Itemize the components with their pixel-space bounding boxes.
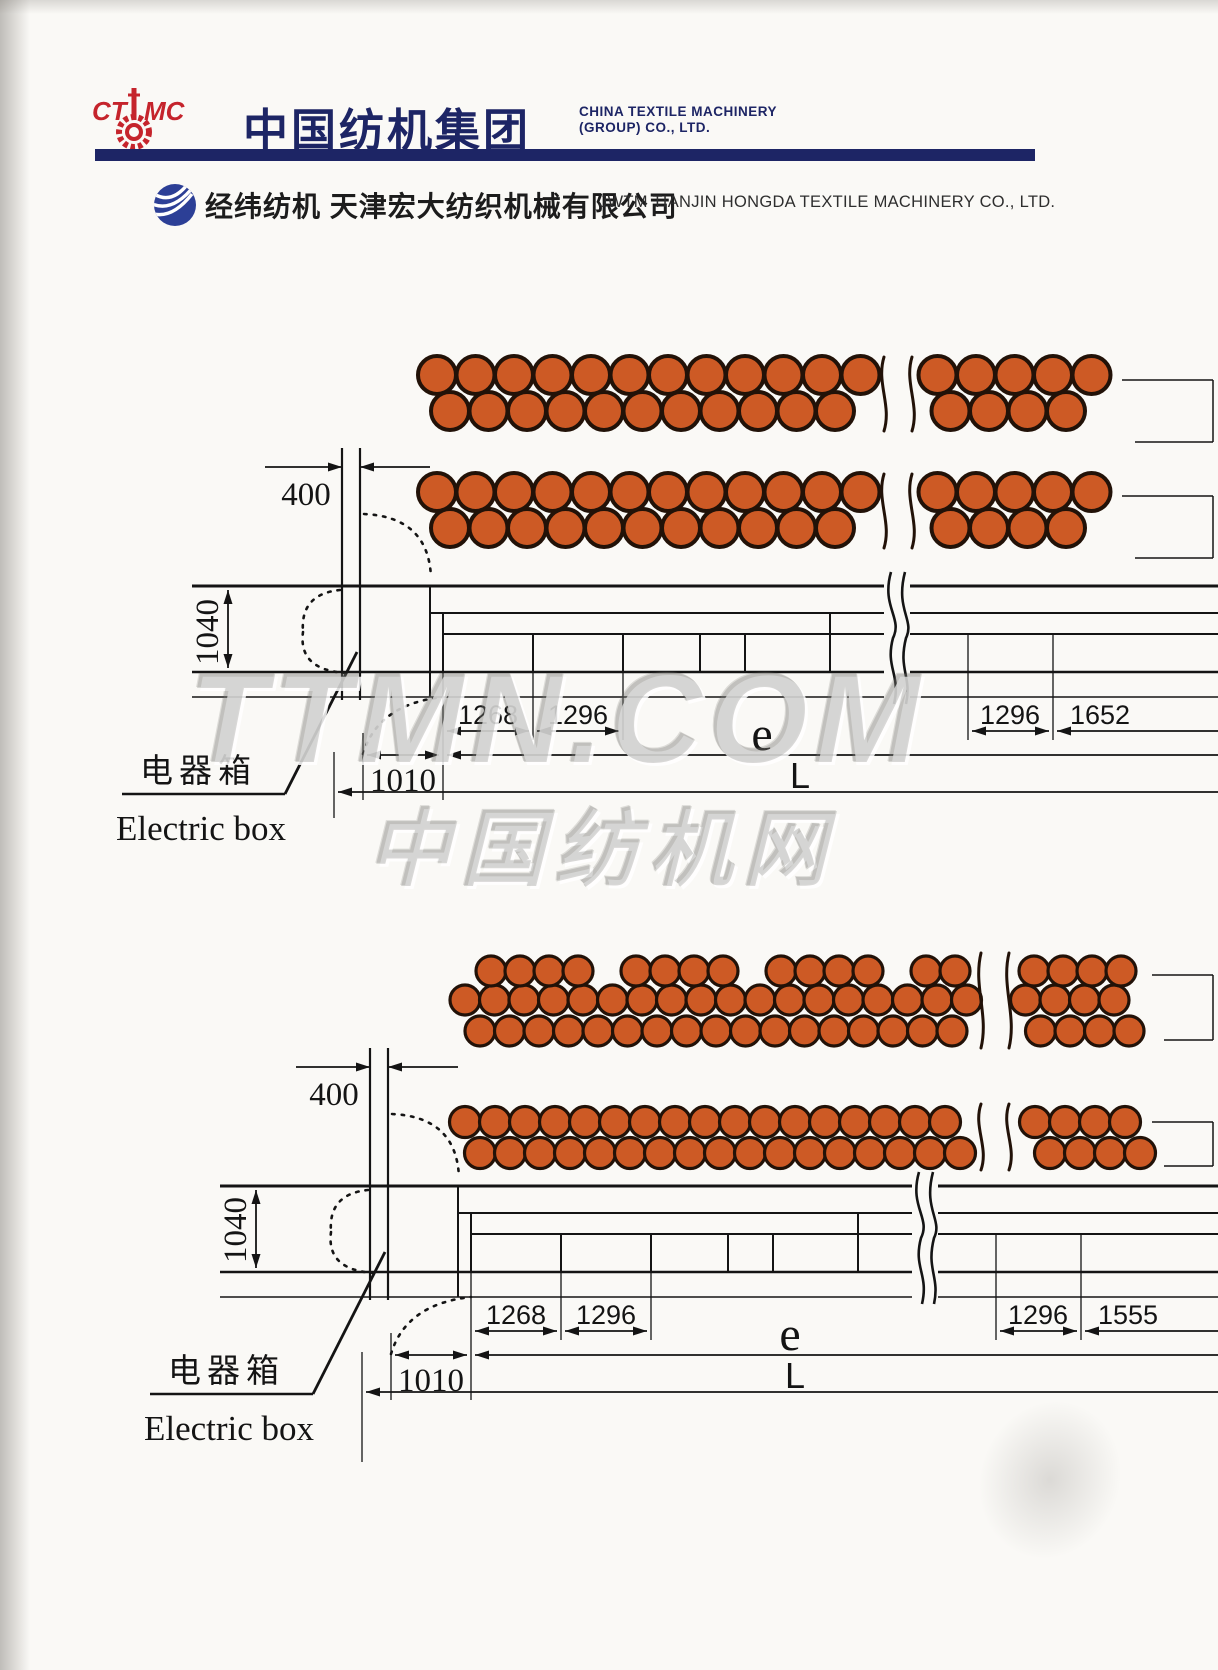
electric-box-label-en: Electric box xyxy=(116,809,287,848)
dim-seg-end: 1652 xyxy=(1070,700,1130,730)
dim-seg2: 1296 xyxy=(548,700,608,730)
electric-box-label-cn: 电器箱 xyxy=(168,1352,285,1389)
dim-head-width: 400 xyxy=(309,1077,359,1113)
top-drawing-graphics xyxy=(122,356,1218,818)
dim-total-length: L xyxy=(785,1355,805,1396)
dim-head-length: 1010 xyxy=(370,763,436,799)
dim-seg-end: 1555 xyxy=(1098,1300,1158,1330)
dim-pitch-span: e xyxy=(751,708,772,761)
electric-box-label-cn: 电器箱 xyxy=(140,752,257,789)
catalog-page: CT MC 中国纺机集团 CHINA TEXTILE MACHINERY (GR… xyxy=(0,0,1218,1670)
dim-machine-depth: 1040 xyxy=(218,1197,254,1263)
dim-seg1: 1268 xyxy=(458,700,518,730)
electric-box-label-en: Electric box xyxy=(144,1409,315,1448)
dim-seg-right: 1296 xyxy=(1008,1300,1068,1330)
dim-head-width: 400 xyxy=(281,477,331,513)
dim-head-length: 1010 xyxy=(398,1363,464,1399)
dim-seg2: 1296 xyxy=(576,1300,636,1330)
dim-total-length: L xyxy=(790,755,810,796)
dim-machine-depth: 1040 xyxy=(190,599,226,665)
bottom-drawing-graphics xyxy=(150,953,1218,1462)
dim-seg1: 1268 xyxy=(486,1300,546,1330)
dim-pitch-span: e xyxy=(779,1308,800,1361)
dim-seg-right: 1296 xyxy=(980,700,1040,730)
